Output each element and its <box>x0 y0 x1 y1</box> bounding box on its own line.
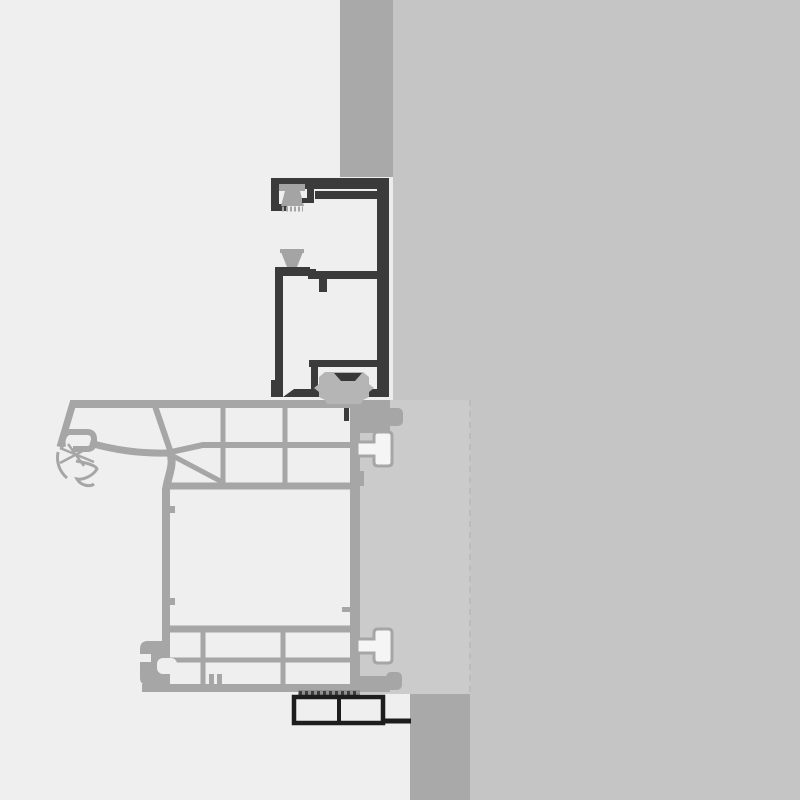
castellation-2 <box>217 674 222 686</box>
section-drawing <box>0 0 800 800</box>
wall-nub-2 <box>169 598 175 605</box>
mid-bar-stub <box>319 279 327 292</box>
fastener-tick <box>344 408 349 421</box>
wall-nub-1 <box>169 506 175 513</box>
sill-bottom-right-block <box>350 676 390 692</box>
frame-wall-gap-line <box>389 177 393 400</box>
wall-nub-right <box>358 471 364 486</box>
wall-below <box>410 694 470 800</box>
head-left-wall <box>275 267 283 388</box>
head-right-wall <box>377 178 389 397</box>
left-wall-foot <box>271 380 283 397</box>
clip-tab-top <box>386 408 403 426</box>
inner-lip-bar <box>315 191 378 199</box>
gasket-upper-rail <box>279 184 305 191</box>
gasket-upper-body <box>281 191 304 206</box>
interior-background-lower <box>470 694 800 800</box>
sill-top-right-block <box>350 400 390 433</box>
hook-notch <box>140 654 151 662</box>
hook-slot <box>174 663 186 672</box>
lower-chamber-top <box>309 360 378 367</box>
lower-chamber-stub <box>311 360 318 396</box>
wall-stub-rib <box>342 607 350 612</box>
castellation-1 <box>209 674 214 686</box>
wall-above <box>340 0 393 177</box>
technical-drawing-canvas <box>0 0 800 800</box>
clip-tab-bottom <box>386 672 402 690</box>
mid-bar-right <box>314 271 378 279</box>
